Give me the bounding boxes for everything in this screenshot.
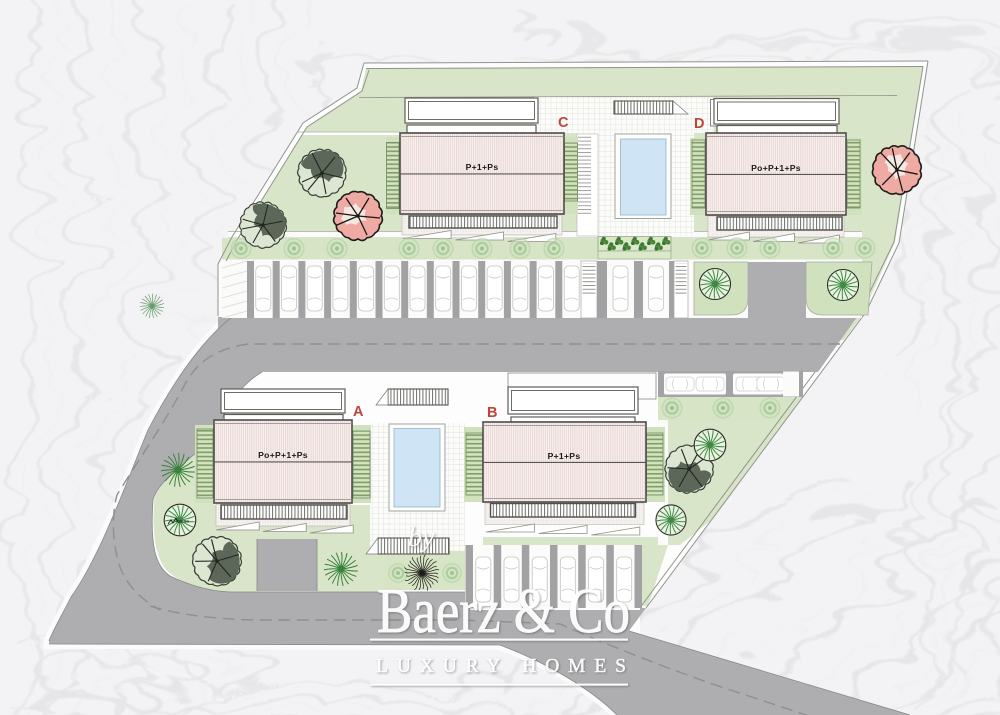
svg-text:Baerz & Co: Baerz & Co [377,576,630,646]
svg-text:D: D [694,116,704,132]
svg-text:+35.60: +35.60 [175,519,189,524]
svg-text:A: A [353,404,364,420]
svg-text:by: by [408,522,435,553]
svg-text:Po+P+1+Ps: Po+P+1+Ps [751,163,801,173]
svg-text:P+1+Ps: P+1+Ps [548,451,581,461]
svg-text:P+1+Ps: P+1+Ps [466,162,499,172]
svg-text:Po+P+1+Ps: Po+P+1+Ps [258,450,308,460]
svg-text:C: C [558,115,569,131]
svg-text:B: B [487,405,497,421]
